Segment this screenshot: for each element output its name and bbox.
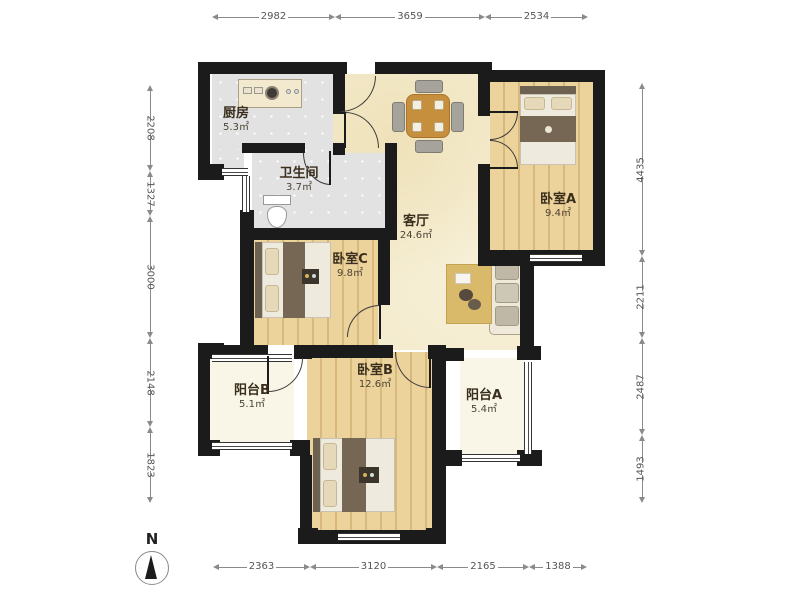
dimension-label: 1823: [144, 450, 156, 479]
dimension-segment: 2148: [143, 338, 157, 427]
wall-segment: [198, 343, 210, 455]
dimension-label: 2534: [522, 11, 551, 23]
wall-segment: [520, 266, 534, 348]
toilet-icon: [263, 195, 291, 229]
tv-icon: [359, 467, 379, 483]
sofa-cushion: [495, 283, 519, 303]
dimension-label: 1388: [543, 561, 572, 573]
dimension-segment: 2534: [485, 10, 588, 24]
dimension-label: 3659: [395, 11, 424, 23]
dimension-segment: 2982: [212, 10, 335, 24]
wall-segment: [307, 345, 393, 358]
dimension-segment: 2211: [635, 256, 649, 338]
dimension-label: 2363: [247, 561, 276, 573]
dimension-segment: 1327: [143, 171, 157, 216]
dimension-label: 4435: [636, 155, 648, 184]
coffee-table-icon: [446, 264, 492, 324]
wall-segment: [198, 62, 210, 166]
north-arrow-icon: [145, 555, 157, 579]
wall-segment: [242, 143, 305, 153]
wall-segment: [478, 164, 490, 266]
door-leaf: [339, 74, 341, 112]
dimension-segment: 1823: [143, 427, 157, 503]
sink-icon: [254, 87, 263, 94]
wall-segment: [198, 62, 347, 74]
plate-icon: [434, 122, 444, 132]
dimension-segment: 3659: [335, 10, 485, 24]
dimension-label: 2148: [144, 368, 156, 397]
dimension-label: 3000: [144, 262, 156, 291]
dimension-segment: 2487: [635, 338, 649, 435]
door-leaf: [379, 305, 381, 339]
window: [242, 176, 250, 212]
stove-knob-icon: [294, 89, 299, 94]
dimension-label: 2211: [636, 282, 648, 311]
window: [222, 168, 248, 176]
dimension-segment: 1388: [529, 560, 587, 574]
wall-segment: [446, 348, 464, 361]
room-label-balcony-b: 阳台B 5.1㎡: [224, 383, 280, 411]
bed-icon: [313, 438, 395, 512]
sofa-cushion: [495, 306, 519, 326]
door-leaf: [344, 112, 346, 148]
dimension-label: 1327: [144, 179, 156, 208]
wall-segment: [378, 232, 390, 305]
room-label-balcony-a: 阳台A 5.4㎡: [456, 388, 512, 416]
room-label-bathroom: 卫生间 3.7㎡: [268, 166, 330, 194]
dimension-label: 2165: [468, 561, 497, 573]
room-label-bedroom-a: 卧室A 9.4㎡: [530, 192, 586, 220]
room-label-bedroom-c: 卧室C 9.8㎡: [322, 252, 378, 280]
north-label: N: [134, 530, 170, 548]
pillow-icon: [265, 285, 279, 312]
kitchen-counter: [238, 79, 302, 108]
pillow-icon: [265, 248, 279, 275]
window: [524, 362, 532, 454]
wall-segment: [517, 346, 541, 360]
window: [462, 454, 520, 462]
door-leaf: [490, 111, 518, 113]
dining-table-icon: [392, 80, 464, 154]
dimension-segment: 2208: [143, 85, 157, 171]
dimension-label: 3120: [359, 561, 388, 573]
wall-segment: [488, 70, 605, 82]
north-compass: N: [134, 530, 170, 588]
pillow-icon: [524, 97, 545, 110]
dimension-label: 2487: [636, 372, 648, 401]
sink-icon: [243, 87, 252, 94]
bed-icon: [255, 242, 331, 318]
wall-segment: [432, 450, 462, 466]
wall-segment: [478, 70, 490, 116]
bed-icon: [520, 86, 576, 165]
plate-icon: [412, 100, 422, 110]
door-leaf: [490, 167, 518, 169]
wall-segment: [432, 348, 446, 544]
pot-icon: [468, 299, 481, 310]
dimension-segment: 2165: [437, 560, 529, 574]
dimension-segment: 3120: [310, 560, 437, 574]
wall-segment: [290, 440, 310, 456]
paper-icon: [455, 273, 471, 284]
wall-segment: [426, 528, 446, 544]
dimension-segment: 4435: [635, 83, 649, 256]
pillow-icon: [323, 443, 337, 470]
dimension-label: 1493: [636, 454, 648, 483]
window: [212, 442, 292, 450]
wall-segment: [375, 62, 492, 74]
tv-icon: [302, 269, 319, 284]
window: [530, 254, 582, 262]
chair-icon: [451, 102, 464, 132]
wall-segment: [593, 70, 605, 266]
pillow-icon: [323, 480, 337, 507]
floorplan: 厨房 5.3㎡ 卫生间 3.7㎡ 客厅 24.6㎡ 卧室A 9.4㎡ 卧室C 9…: [0, 0, 800, 600]
stove-burner-icon: [265, 86, 279, 100]
wall-segment: [242, 228, 397, 240]
dimension-segment: 3000: [143, 216, 157, 338]
door-leaf: [429, 350, 431, 388]
stove-knob-icon: [286, 89, 291, 94]
wall-segment: [198, 164, 224, 180]
dimension-label: 2982: [259, 11, 288, 23]
chair-icon: [415, 140, 443, 153]
room-label-bedroom-b: 卧室B 12.6㎡: [347, 363, 403, 391]
dimension-segment: 2363: [213, 560, 310, 574]
dimension-label: 2208: [144, 113, 156, 142]
plate-icon: [434, 100, 444, 110]
dimension-segment: 1493: [635, 435, 649, 503]
chair-icon: [392, 102, 405, 132]
plate-icon: [412, 122, 422, 132]
room-label-kitchen: 厨房 5.3㎡: [210, 106, 262, 134]
chair-icon: [415, 80, 443, 93]
window: [338, 533, 400, 541]
pillow-icon: [551, 97, 572, 110]
room-label-living: 客厅 24.6㎡: [388, 214, 444, 242]
